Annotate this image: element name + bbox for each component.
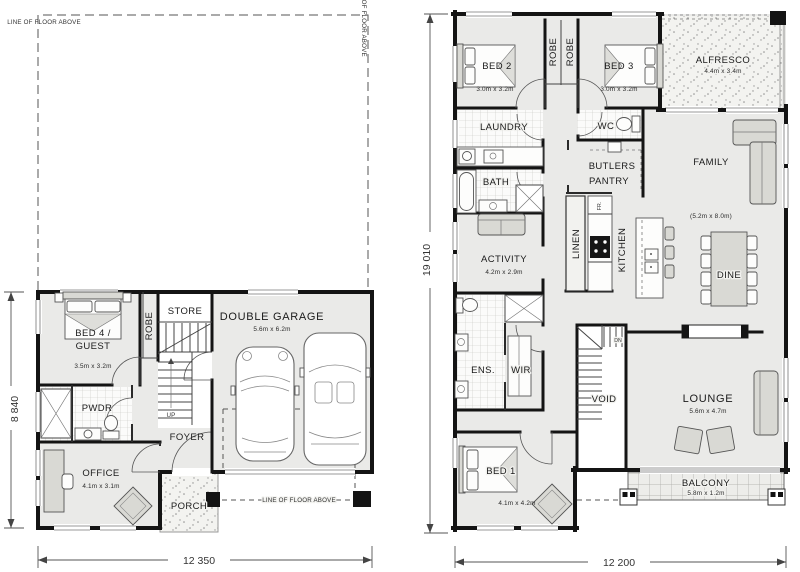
bed1-size: 4.1m x 4.2m: [498, 500, 535, 507]
butlers-label-2: PANTRY: [589, 176, 629, 187]
floor-above-label-top: LINE OF FLOOR ABOVE: [7, 19, 81, 26]
alfresco-post: [770, 11, 786, 25]
floor-plan-page: LINE OF FLOOR ABOVE LINE OF FLOOR ABOVE …: [0, 0, 800, 572]
kitchen-label: KITCHEN: [617, 228, 628, 273]
ground-dim-width: 12 350: [183, 555, 215, 567]
porch-label: PORCH: [171, 501, 207, 512]
garage-door-opening: [225, 468, 355, 476]
office-size: 4.1m x 3.1m: [82, 483, 119, 490]
activity-label: ACTIVITY: [481, 254, 527, 265]
floor-above-label-right: LINE OF FLOOR ABOVE: [360, 0, 367, 57]
bed4-size: 3.5m x 3.2m: [74, 363, 111, 370]
bed3-size: 3.0m x 3.2m: [600, 86, 637, 93]
pwdr-label: PWDR: [82, 403, 113, 414]
lounge-size: 5.6m x 4.7m: [689, 408, 726, 415]
fridge-label: FR.: [597, 202, 603, 210]
bed2-size: 3.0m x 3.2m: [476, 86, 513, 93]
bed3-label: BED 3: [604, 61, 633, 72]
ground-dim-height: 8 840: [9, 396, 21, 422]
linen-label: LINEN: [571, 229, 582, 259]
floor-above-label-bottom: LINE OF FLOOR ABOVE: [262, 497, 336, 504]
lounge-label: LOUNGE: [683, 393, 734, 405]
balcony-size: 5.8m x 1.2m: [687, 490, 724, 497]
store-label: STORE: [168, 306, 203, 317]
first-dim-width: 12 200: [603, 557, 635, 569]
laundry-label: LAUNDRY: [480, 122, 528, 133]
foyer-label: FOYER: [170, 432, 205, 443]
wc-fixtures: [617, 116, 641, 132]
first-floor-plan: DN: [421, 10, 790, 569]
butlers-label-1: BUTLERS: [589, 161, 636, 172]
media-unit: [682, 325, 748, 338]
balcony-label: BALCONY: [682, 478, 730, 489]
porch-post: [206, 492, 220, 507]
car-2: [300, 333, 370, 465]
first-dim-height: 19 010: [421, 244, 433, 276]
office-label: OFFICE: [82, 468, 119, 479]
floor-above-outline: [38, 15, 368, 290]
dn-label: DN: [614, 338, 622, 344]
bed2-label: BED 2: [482, 61, 511, 72]
robe-left-label: ROBE: [548, 38, 559, 67]
wc-label: WC: [598, 121, 615, 132]
corner-post: [353, 491, 371, 507]
bed4-label-2: GUEST: [76, 341, 111, 352]
up-label: UP: [167, 412, 176, 419]
void-label: VOID: [592, 394, 617, 405]
ens-label: ENS.: [471, 365, 495, 376]
entry-opening: [172, 468, 212, 476]
car-1: [231, 347, 299, 461]
garage-label: DOUBLE GARAGE: [220, 311, 324, 323]
alfresco-label: ALFRESCO: [696, 55, 750, 66]
family-label: FAMILY: [693, 157, 729, 168]
garage-size: 5.6m x 6.2m: [253, 326, 290, 333]
activity-sofa: [478, 214, 525, 235]
robe-label: ROBE: [144, 312, 155, 341]
robe-right-label: ROBE: [565, 38, 576, 67]
wir-label: WIR: [511, 365, 531, 376]
bath-label: BATH: [483, 177, 509, 188]
floor-plan-drawing: LINE OF FLOOR ABOVE LINE OF FLOOR ABOVE …: [0, 0, 800, 572]
laundry-fixtures: [457, 147, 543, 166]
family-size: (5.2m x 8.0m): [690, 213, 732, 220]
bed1-label: BED 1: [486, 466, 515, 477]
alfresco-size: 4.4m x 3.4m: [704, 68, 741, 75]
bed4-label-1: BED 4 /: [75, 328, 111, 339]
dine-label: DINE: [717, 270, 741, 281]
activity-size: 4.2m x 2.9m: [485, 269, 522, 276]
ground-floor-plan: LINE OF FLOOR ABOVE LINE OF FLOOR ABOVE …: [4, 0, 372, 568]
